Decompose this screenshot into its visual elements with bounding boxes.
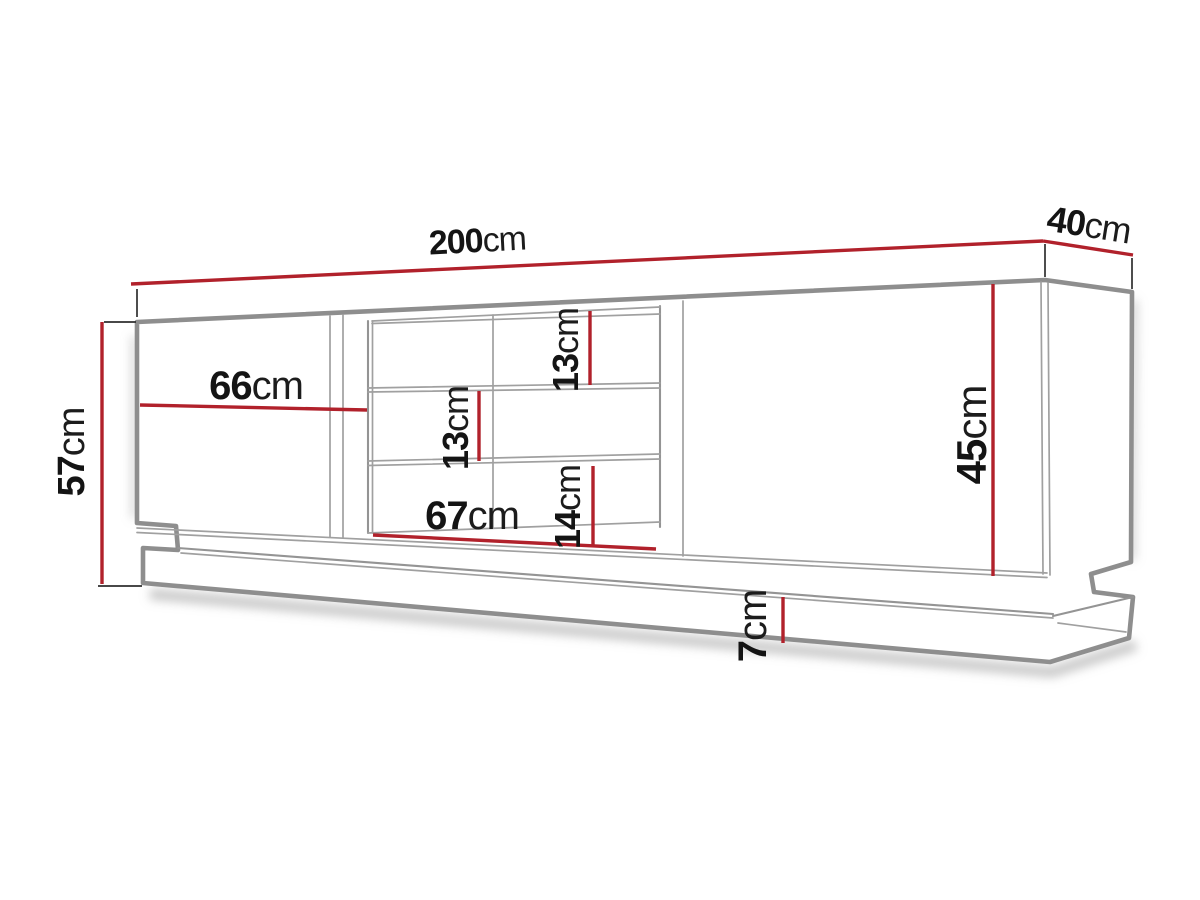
dimension-diagram: 200cm 40cm 57cm 66cm 13cm 13cm 14cm 67cm…: [0, 0, 1200, 900]
dim-shelf-bottom-label: 14cm: [547, 465, 588, 549]
dim-total-width-line: [131, 241, 1043, 284]
dim-niche-width-label: 67cm: [425, 494, 519, 538]
dim-shelf-top-label: 13cm: [545, 308, 586, 392]
tv-stand-technical-drawing: 200cm 40cm 57cm 66cm 13cm 13cm 14cm 67cm…: [0, 0, 1200, 900]
dim-total-width-label: 200cm: [428, 220, 527, 263]
dim-front-height-label: 45cm: [948, 386, 995, 485]
dim-shelf-middle-label: 13cm: [435, 386, 476, 470]
dim-total-height-label: 57cm: [51, 408, 93, 497]
dim-door-width-label: 66cm: [209, 364, 303, 408]
dim-base-height-label: 7cm: [731, 590, 775, 663]
